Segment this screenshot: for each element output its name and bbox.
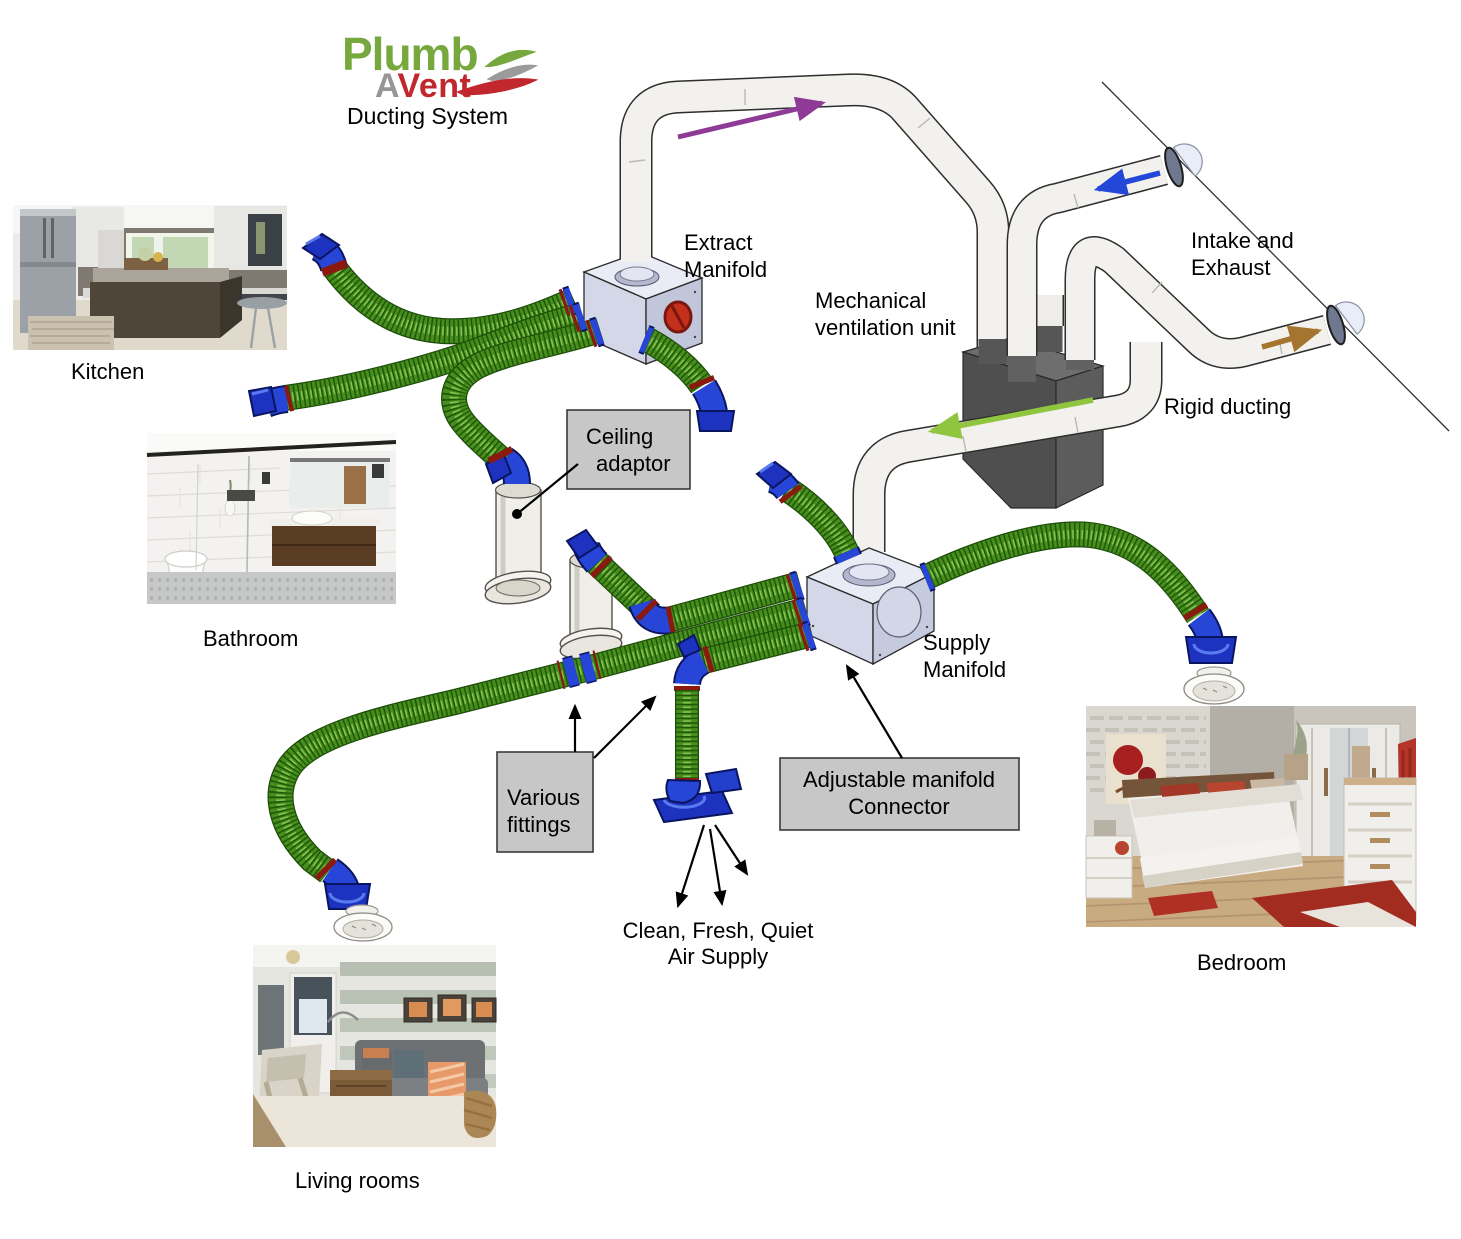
svg-text:Exhaust: Exhaust [1191, 255, 1271, 280]
svg-text:Living rooms: Living rooms [295, 1168, 420, 1193]
svg-text:Extract: Extract [684, 230, 752, 255]
svg-text:Manifold: Manifold [923, 657, 1006, 682]
svg-text:Bedroom: Bedroom [1197, 950, 1286, 975]
svg-text:Air Supply: Air Supply [668, 944, 768, 969]
svg-text:Rigid ducting: Rigid ducting [1164, 394, 1291, 419]
svg-text:Bathroom: Bathroom [203, 626, 298, 651]
svg-text:Ceiling: Ceiling [586, 424, 653, 449]
svg-text:Ducting System: Ducting System [347, 103, 508, 129]
svg-text:Intake and: Intake and [1191, 228, 1294, 253]
svg-text:adaptor: adaptor [596, 451, 671, 476]
svg-text:Clean, Fresh, Quiet: Clean, Fresh, Quiet [623, 918, 814, 943]
svg-text:Connector: Connector [848, 794, 950, 819]
svg-text:Various: Various [507, 785, 580, 810]
svg-text:Mechanical: Mechanical [815, 288, 926, 313]
svg-text:AVent: AVent [375, 67, 471, 105]
svg-text:Kitchen: Kitchen [71, 359, 144, 384]
svg-text:Supply: Supply [923, 630, 990, 655]
svg-text:ventilation unit: ventilation unit [815, 315, 956, 340]
svg-text:Manifold: Manifold [684, 257, 767, 282]
svg-text:Adjustable manifold: Adjustable manifold [803, 767, 995, 792]
svg-text:fittings: fittings [507, 812, 571, 837]
